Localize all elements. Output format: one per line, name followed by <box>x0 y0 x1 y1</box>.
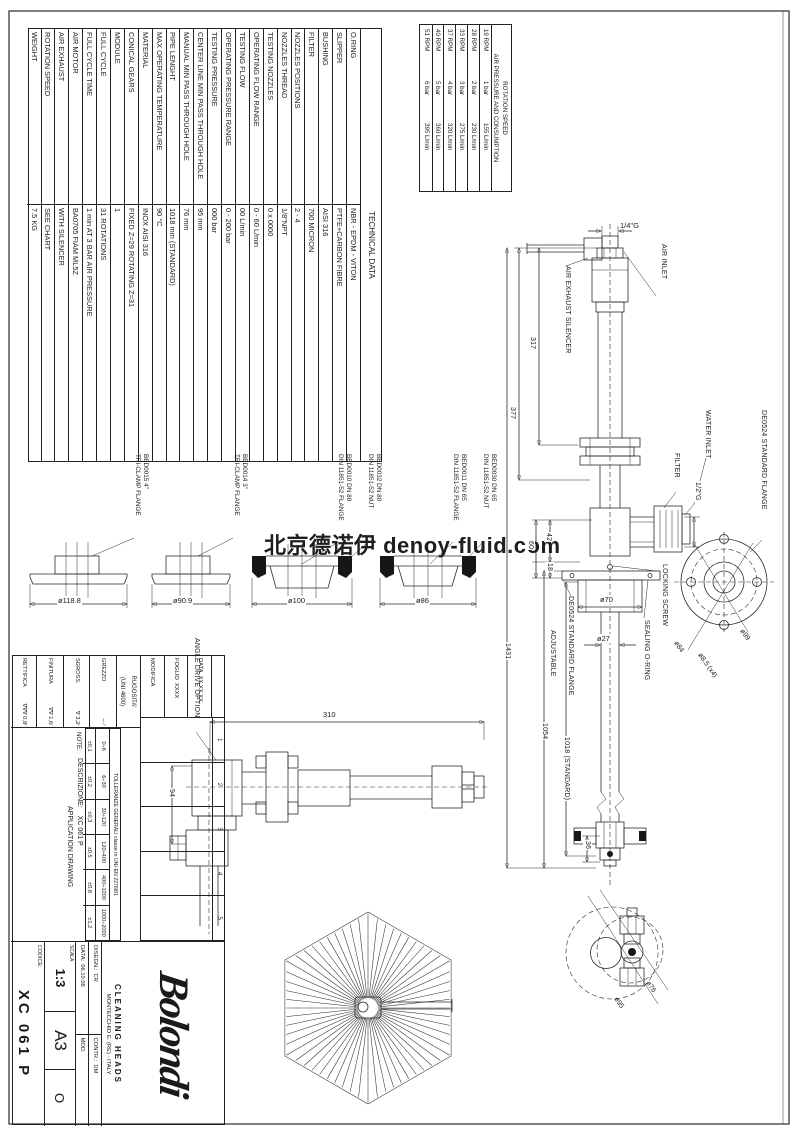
description-line2: APPLICATION DRAWING <box>64 806 74 938</box>
tol-range: 6÷30 <box>97 764 110 799</box>
row-value: 7.5 KG <box>27 205 41 461</box>
modifica-label: MODIFICA <box>149 658 155 686</box>
revision-number: 5 <box>212 896 224 940</box>
pressure: 4 bar <box>444 81 455 123</box>
flow: 275 L/min <box>456 123 467 191</box>
rug-label: RETTIFICA <box>21 658 27 687</box>
tolerance-header: TOLLERANZE GENERALI classe m UNI-EN 2276… <box>109 729 120 940</box>
revision-modifica-row: MODIFICA <box>141 656 164 717</box>
locking-screw-label: LOCKING SCREW <box>660 564 669 626</box>
row-value: INOX AISI 316 <box>139 205 152 461</box>
row-label: TESTING FLOW <box>236 29 249 205</box>
table-row: MANUAL MIN PASS THROUGH HOLE76 mm <box>179 29 193 461</box>
table-row: FULL CYCLE31 ROTATIONS <box>96 29 110 461</box>
flange-type: TRI-CLAMP FLANGE <box>232 454 240 516</box>
watermark-text: 北京德诺伊 denoy-fluid.com <box>264 528 561 560</box>
row-value: 0 x 0000 <box>264 205 277 461</box>
flow: 230 L/min <box>468 123 479 191</box>
projection-cell: O <box>45 1070 75 1126</box>
dim-118-8: ø118.8 <box>57 596 82 605</box>
row-label: SLIPPER <box>333 29 346 205</box>
date-cell: DATA:06.10.08 <box>76 942 88 1035</box>
code-label: CODICE: <box>36 945 42 967</box>
dim-42: 42 <box>544 532 553 542</box>
rpm: 51 RPM <box>420 25 432 81</box>
tol-value: ±0,5 <box>83 835 96 870</box>
scale-cell: SCALA 1:3 <box>45 942 75 1012</box>
tol-value: ±0,1 <box>83 729 96 764</box>
pressure: 5 bar <box>433 81 444 123</box>
row-label: WEIGHT <box>27 29 41 205</box>
row-label: NOZZLES POSITIONS <box>292 29 305 205</box>
row-value: 700 MICRON <box>305 205 318 461</box>
rpm: 28 RPM <box>468 25 479 81</box>
row-value: FIXED Z=29 ROTATING Z=31 <box>125 205 138 461</box>
flange-type: DIN 11851-52 FLANGE <box>336 454 344 521</box>
table-row: CONICAL GEARSFIXED Z=29 ROTATING Z=31 <box>124 29 138 461</box>
roughness-norm: (UNI 4600) <box>116 656 127 727</box>
rug-symbol: ∇∇∇ 0,8∕ <box>21 704 27 726</box>
dim-18: 18 <box>545 562 554 572</box>
speed-row: 33 RPM3 bar275 L/min <box>455 25 467 191</box>
disegn-label: DISEGN.: <box>89 945 101 970</box>
description-block: DESCRIZIONE: XC 061 P APPLICATION DRAWIN… <box>64 758 84 938</box>
flange-type: DIN 11851-52 NUT <box>366 454 374 508</box>
table-row: BUSHINGAISI 316 <box>318 29 332 461</box>
revision-number: 1 <box>212 718 224 762</box>
tol-value: ±1,2 <box>83 906 96 940</box>
standard-flange-label-right: DE0524 STANDARD FLANGE <box>759 410 768 510</box>
row-value: 00 L/min <box>236 205 249 461</box>
scale-format-row: SCALA 1:3 A3 O <box>45 942 76 1126</box>
row-value: 31 ROTATIONS <box>97 205 110 461</box>
row-value: 1/8"NPT <box>278 205 291 461</box>
title-block: DATAXX.XX.XX FOGLIOXXXX MODIFICA 1 2 3 4… <box>12 655 225 1125</box>
rpm: 19 RPM <box>480 25 491 81</box>
pressure: 1 bar <box>480 81 491 123</box>
roughness-row: SGROSS.∇ 3,2∕ <box>63 656 90 727</box>
row-value: NBR - EPDM - VITON <box>347 205 360 461</box>
revision-number: 2 <box>212 763 224 807</box>
flange-label-bed0010: BED0010 DN 80 DIN 11851-52 FLANGE <box>336 454 352 521</box>
dim-377: 377 <box>508 406 517 420</box>
row-value: 0 - 60 L/min <box>250 205 263 461</box>
row-label: MANUAL MIN PASS THROUGH HOLE <box>180 29 193 205</box>
flange-type: DIN 11851-52 FLANGE <box>451 454 459 521</box>
tolerance-table: TOLLERANZE GENERALI classe m UNI-EN 2276… <box>85 728 121 941</box>
flange-code: BED0010 DN 80 <box>344 454 352 521</box>
table-row: FILTER700 MICRON <box>304 29 318 461</box>
dim-86: ø86 <box>415 596 430 605</box>
description-label: DESCRIZIONE: <box>76 758 83 808</box>
revision-header-column: DATAXX.XX.XX FOGLIOXXXX MODIFICA <box>141 656 224 718</box>
tol-range: 0÷6 <box>97 729 110 764</box>
code-value: XC 061 P <box>15 942 32 1126</box>
row-label: CENTER LINE MIN PASS THROUGH HOLE <box>194 29 207 205</box>
flange-code: BED0014 3" <box>240 454 248 516</box>
contr-label: CONTR.: <box>89 1038 101 1062</box>
tol-range: 400÷1000 <box>97 870 110 905</box>
table-row: OPERATING PRESSURE RANGE0 - 200 bar <box>221 29 235 461</box>
revision-data-row: DATAXX.XX.XX <box>187 656 211 717</box>
table-row: AIR MOTORBA0705 FIAM ML5Z <box>68 29 82 461</box>
row-label: CONICAL GEARS <box>125 29 138 205</box>
row-label: FULL CYCLE TIME <box>83 29 96 205</box>
date-label: DATA: <box>76 945 88 961</box>
tolerance-values: ±0,1 ±0,2 ±0,3 ±0,5 ±0,8 ±1,2 <box>83 729 96 940</box>
data-label: DATA <box>197 658 203 673</box>
flow: 395 L/min <box>420 123 432 191</box>
row-value: 1018 mm (STANDARD) <box>167 205 180 461</box>
tol-value: ±0,8 <box>83 870 96 905</box>
row-label: OPERATING PRESSURE RANGE <box>222 29 235 205</box>
table-row: MODULE1 <box>110 29 124 461</box>
table-row: FULL CYCLE TIME1 min AT 3 BAR AIR PRESSU… <box>82 29 96 461</box>
row-value: 2 - 4 <box>292 205 305 461</box>
table-row: MATERIALINOX AISI 316 <box>138 29 152 461</box>
revision-number: 4 <box>212 852 224 896</box>
disegn-value: CR <box>89 973 101 981</box>
row-value: PTFE+CARBON FIBRE <box>333 205 346 461</box>
table-row: TESTING FLOW00 L/min <box>235 29 249 461</box>
brand-line2: MONTECCHIO E. (RE) - ITALY <box>102 942 111 1126</box>
row-value: 90 °C <box>153 205 166 461</box>
air-exhaust-silencer-label: AIR EXHAUST SILENCER <box>563 266 572 354</box>
rug-label: SGROSS. <box>74 658 80 684</box>
rpm: 33 RPM <box>456 25 467 81</box>
table-row: SLIPPERPTFE+CARBON FIBRE <box>332 29 346 461</box>
dim-1431: 1431 <box>503 642 512 660</box>
water-inlet-size-label: 1/2"G <box>693 481 702 502</box>
row-label: BUSHING <box>319 29 332 205</box>
format-cell: A3 <box>45 1012 75 1070</box>
rug-symbol: ∇∇ 1,6∕ <box>47 707 53 725</box>
table-row: TESTING NOZZLES0 x 0000 <box>263 29 277 461</box>
flange-label-bed0032: BED0032 DN 80 DIN 11851-52 NUT <box>366 454 382 508</box>
row-label: O.RING <box>347 29 360 205</box>
flange-type: DIN 11851-52 NUT <box>481 454 489 508</box>
row-value: 95 mm <box>194 205 207 461</box>
row-label: NOZZLES THREAD <box>278 29 291 205</box>
dim-310: 310 <box>322 710 337 719</box>
flange-code: BED0015 4" <box>141 454 149 516</box>
roughness-table: RUGOSITA' (UNI 4600) GREZZO∼ ∕ SGROSS.∇ … <box>11 656 140 728</box>
dim-100: ø100 <box>287 596 306 605</box>
tol-value: ±0,2 <box>83 764 96 799</box>
tol-value: ±0,3 <box>83 800 96 835</box>
rug-label: GREZZO <box>100 658 106 681</box>
rug-symbol: ∇ 3,2∕ <box>74 711 80 725</box>
speed-table-body: 19 RPM1 bar155 L/min 28 RPM2 bar230 L/mi… <box>419 24 491 192</box>
dim-70: ø70 <box>599 595 614 604</box>
rotation-speed-table: ROTATION SPEED AIR PRESSURE AND CONSUMPT… <box>418 24 512 192</box>
filter-label: FILTER <box>672 453 681 478</box>
row-value: BA0705 FIAM ML5Z <box>69 205 82 461</box>
drawn-checked-row: DISEGN.:CR CONTR.:DM <box>89 942 102 1126</box>
flange-label-bed0014: BED0014 3" TRI-CLAMP FLANGE <box>232 454 248 516</box>
table-row: OPERATING FLOW RANGE0 - 60 L/min <box>249 29 263 461</box>
note-label: NOTE: <box>75 732 82 751</box>
checked-cell: CONTR.:DM <box>89 1035 101 1127</box>
technical-data-header: TECHNICAL DATA <box>360 29 381 461</box>
air-inlet-size-label: 1/4"G <box>620 221 639 230</box>
roughness-title: RUGOSITA' <box>127 656 138 727</box>
row-label: MATERIAL <box>139 29 152 205</box>
mod-cell: MOD. <box>76 1035 88 1127</box>
company-id-block: Bolondi CLEANING HEADS MONTECCHIO E. (RE… <box>11 941 224 1126</box>
speed-row: 28 RPM2 bar230 L/min <box>467 25 479 191</box>
flange-code: BED0030 DN 65 <box>489 454 497 508</box>
flange-code: BED0011 DN 65 <box>459 454 467 521</box>
speed-row: 19 RPM1 bar155 L/min <box>479 25 491 191</box>
brand-line1: CLEANING HEADS <box>111 942 122 1126</box>
technical-data-table: TECHNICAL DATA O.RINGNBR - EPDM - VITON … <box>28 28 382 462</box>
date-value: 06.10.08 <box>76 964 88 987</box>
roughness-header: RUGOSITA' (UNI 4600) <box>116 656 140 727</box>
flange-type: TRI-CLAMP FLANGE <box>133 454 141 516</box>
flange-label-bed0030: BED0030 DN 65 DIN 11851-52 NUT <box>481 454 497 508</box>
rug-symbol: ∼ ∕ <box>100 718 106 725</box>
row-label: TESTING NOZZLES <box>264 29 277 205</box>
dim-36: 36 <box>583 840 592 850</box>
speed-table-title1: ROTATION SPEED <box>500 25 509 191</box>
roughness-row: FINITURA∇∇ 1,6∕ <box>37 656 64 727</box>
flange-code: BED0032 DN 80 <box>374 454 382 508</box>
tol-range: 1000÷2000 <box>97 906 110 940</box>
contr-value: DM <box>89 1064 101 1073</box>
code-row: CODICE: XC 061 P <box>11 942 45 1126</box>
row-value: 0 - 200 bar <box>222 205 235 461</box>
scale-value: 1:3 <box>53 945 68 1011</box>
flow: 320 L/min <box>444 123 455 191</box>
revision-column: 4 <box>141 852 224 897</box>
speed-table-title2: AIR PRESSURE AND CONSUMPTION <box>491 25 500 191</box>
tol-range: 120÷400 <box>97 835 110 870</box>
tol-range: 30÷120 <box>97 800 110 835</box>
tolerance-ranges: 0÷6 6÷30 30÷120 120÷400 400÷1000 1000÷20… <box>96 729 110 940</box>
pressure: 2 bar <box>468 81 479 123</box>
rpm: 37 RPM <box>444 25 455 81</box>
mod-label: MOD. <box>76 1038 88 1053</box>
row-label: TESTING PRESSURE <box>208 29 221 205</box>
revision-column: 1 <box>141 718 224 763</box>
revision-foglio-row: FOGLIOXXXX <box>164 656 188 717</box>
date-mod-row: DATA:06.10.08 MOD. <box>76 942 89 1126</box>
dim-1054: 1054 <box>540 722 549 740</box>
sealing-oring-label: SEALING O-RING <box>642 620 651 680</box>
dim-1018-standard: 1018 (STANDARD) <box>562 736 571 801</box>
foglio-label: FOGLIO <box>173 658 179 680</box>
table-row: TESTING PRESSURE000 bar <box>207 29 221 461</box>
row-value: AISI 316 <box>319 205 332 461</box>
revision-number: 3 <box>212 807 224 851</box>
foglio-value: XXXX <box>173 683 179 698</box>
table-row: AIR EXHAUSTWITH SILENCER <box>54 29 68 461</box>
water-inlet-label: WATER INLET <box>703 410 712 458</box>
row-label: MAX OPERATING TEMPERATURE <box>153 29 166 205</box>
table-row: CENTER LINE MIN PASS THROUGH HOLE95 mm <box>193 29 207 461</box>
table-row: NOZZLES THREAD1/8"NPT <box>277 29 291 461</box>
row-label: FILTER <box>305 29 318 205</box>
table-row: MAX OPERATING TEMPERATURE90 °C <box>152 29 166 461</box>
data-value: XX.XX.XX <box>197 676 203 702</box>
row-label: FULL CYCLE <box>97 29 110 205</box>
row-label: MODULE <box>111 29 124 205</box>
table-row: WEIGHT7.5 KG <box>27 29 41 461</box>
table-row: NOZZLES POSITIONS2 - 4 <box>291 29 305 461</box>
roughness-row: GREZZO∼ ∕ <box>90 656 117 727</box>
adjustable-label: ADJUSTABLE <box>548 630 557 677</box>
dim-27: ø27 <box>596 634 611 643</box>
speed-table-header: ROTATION SPEED AIR PRESSURE AND CONSUMPT… <box>491 24 512 192</box>
table-row: ROTATION SPEEDSEE CHART <box>41 29 55 461</box>
flow: 360 L/min <box>433 123 444 191</box>
row-value: 76 mm <box>180 205 193 461</box>
dim-60: 60 <box>526 540 535 550</box>
table-row: PIPE LENGHT1018 mm (STANDARD) <box>166 29 180 461</box>
speed-row: 40 RPM5 bar360 L/min <box>432 25 444 191</box>
roughness-row: RETTIFICA∇∇∇ 0,8∕ <box>11 656 37 727</box>
speed-row: 51 RPM6 bar395 L/min <box>420 25 432 191</box>
row-value: WITH SILENCER <box>55 205 68 461</box>
flow: 155 L/min <box>480 123 491 191</box>
dim-317: 317 <box>528 336 537 350</box>
bolondi-logo: Bolondi <box>122 935 224 1133</box>
revision-column: 2 <box>141 763 224 808</box>
scale-label: SCALA <box>68 945 74 1011</box>
revision-column: 5 <box>141 896 224 940</box>
dim-90-9: ø90.9 <box>172 596 193 605</box>
revision-table: DATAXX.XX.XX FOGLIOXXXX MODIFICA 1 2 3 4… <box>140 656 224 941</box>
air-inlet-label: AIR INLET <box>659 244 668 279</box>
revision-columns: 1 2 3 4 5 <box>141 718 224 940</box>
row-label: AIR EXHAUST <box>55 29 68 205</box>
row-label: ROTATION SPEED <box>42 29 55 205</box>
rug-label: FINITURA <box>47 658 53 684</box>
drawn-cell: DISEGN.:CR <box>89 942 101 1035</box>
revision-column: 3 <box>141 807 224 852</box>
speed-row: 37 RPM4 bar320 L/min <box>443 25 455 191</box>
row-label: OPERATING FLOW RANGE <box>250 29 263 205</box>
row-label: PIPE LENGHT <box>167 29 180 205</box>
row-value: 1 <box>111 205 124 461</box>
description-code: XC 061 P <box>76 816 83 846</box>
row-value: 1 min AT 3 BAR AIR PRESSURE <box>83 205 96 461</box>
pressure: 6 bar <box>420 81 432 123</box>
row-value: SEE CHART <box>42 205 55 461</box>
rpm: 40 RPM <box>433 25 444 81</box>
pressure: 3 bar <box>456 81 467 123</box>
drawing-sheet: 北京德诺伊 denoy-fluid.com TECHNICAL DATA O.R… <box>0 0 800 1135</box>
row-value: 000 bar <box>208 205 221 461</box>
flange-label-bed0011: BED0011 DN 65 DIN 11851-52 FLANGE <box>451 454 467 521</box>
flange-label-bed0015: BED0015 4" TRI-CLAMP FLANGE <box>133 454 149 516</box>
table-row: O.RINGNBR - EPDM - VITON <box>346 29 360 461</box>
standard-flange-label-left: DE0524 STANDARD FLANGE <box>566 596 575 696</box>
row-label: AIR MOTOR <box>69 29 82 205</box>
